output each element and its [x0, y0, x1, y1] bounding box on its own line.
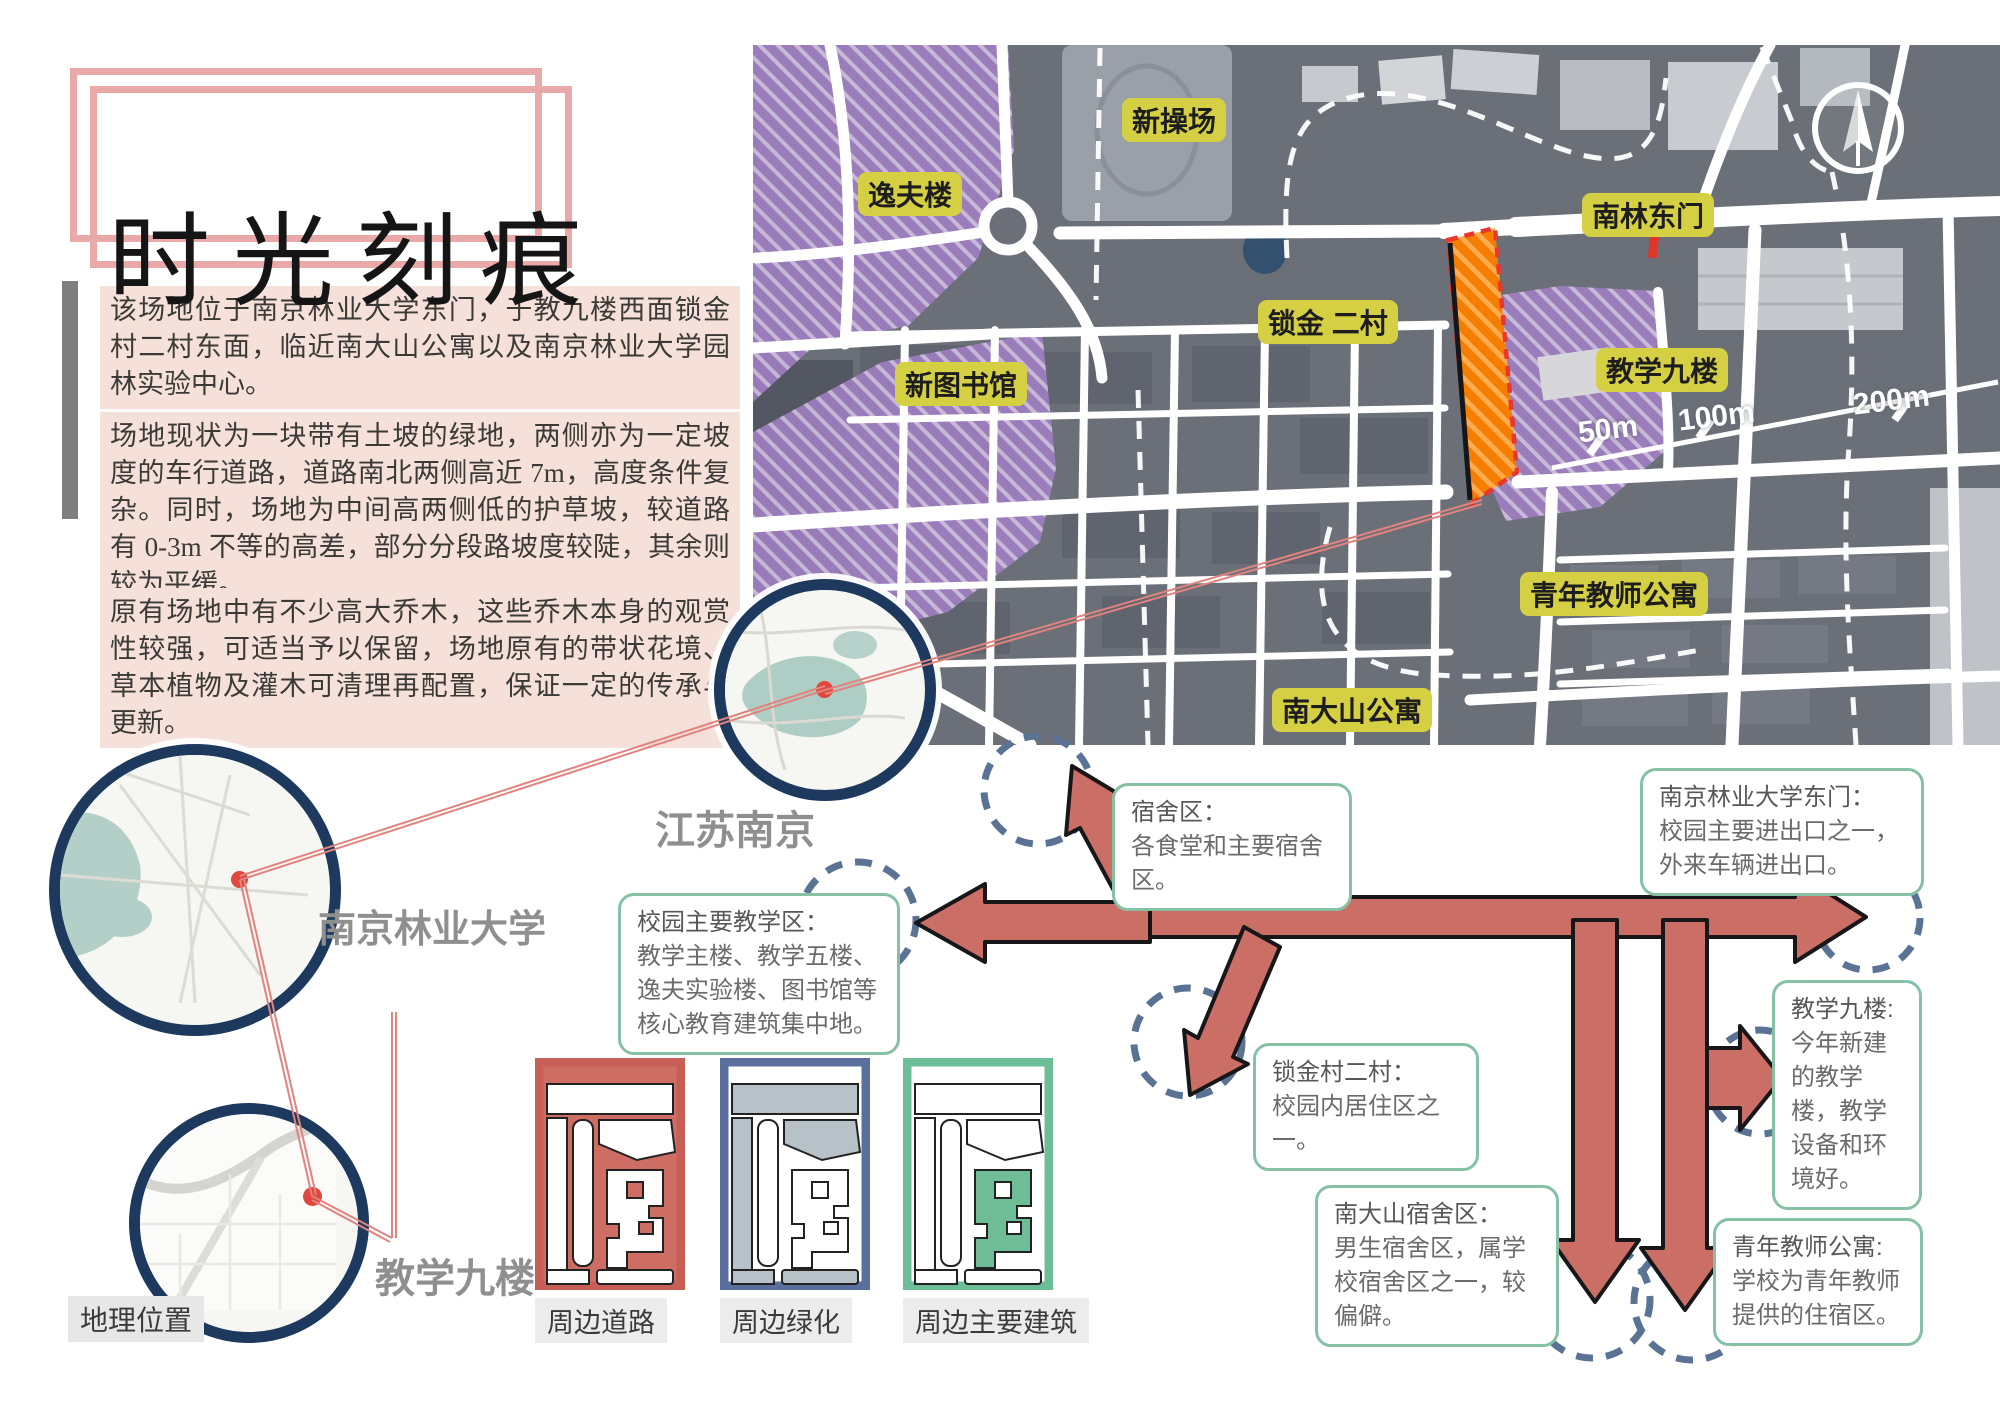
analysis-overlay	[0, 0, 2000, 1414]
callout-suojin: 锁金村二村： 校园内居住区之一。	[1253, 1043, 1479, 1171]
callout-teaching-area-title: 校园主要教学区：	[637, 906, 881, 940]
presentation-board: { "board": { "title": "时光刻痕" }, "intro":…	[0, 0, 2000, 1414]
callout-dorm-body: 各食堂和主要宿舍区。	[1131, 833, 1323, 894]
callout-teacher-apt-body: 学校为青年教师提供的住宿区。	[1732, 1268, 1900, 1329]
callout-teaching9-body: 今年新建的教学楼，教学设备和环境好。	[1791, 1030, 1887, 1193]
callout-teacher-apt-title: 青年教师公寓:	[1732, 1231, 1904, 1265]
callout-teaching9: 教学九楼: 今年新建的教学楼，教学设备和环境好。	[1772, 980, 1922, 1210]
callout-suojin-body: 校园内居住区之一。	[1272, 1093, 1440, 1154]
callout-east-gate: 南京林业大学东门： 校园主要进出口之一，外来车辆进出口。	[1640, 768, 1924, 896]
callout-teaching9-title: 教学九楼:	[1791, 993, 1903, 1027]
callout-dorm: 宿舍区： 各食堂和主要宿舍区。	[1112, 783, 1352, 911]
callout-east-gate-title: 南京林业大学东门：	[1659, 781, 1905, 815]
callout-nandashan-title: 南大山宿舍区：	[1334, 1198, 1540, 1232]
callout-nandashan-body: 男生宿舍区，属学校宿舍区之一，较偏僻。	[1334, 1235, 1526, 1330]
callout-teacher-apt: 青年教师公寓: 学校为青年教师提供的住宿区。	[1713, 1218, 1923, 1346]
callout-dorm-title: 宿舍区：	[1131, 796, 1333, 830]
callout-teaching-area: 校园主要教学区： 教学主楼、教学五楼、逸夫实验楼、图书馆等核心教育建筑集中地。	[618, 893, 900, 1055]
callout-east-gate-body: 校园主要进出口之一，外来车辆进出口。	[1659, 818, 1899, 879]
arrow-down-nandashan	[1551, 920, 1639, 1302]
callout-teaching-area-body: 教学主楼、教学五楼、逸夫实验楼、图书馆等核心教育建筑集中地。	[637, 943, 877, 1038]
callout-suojin-title: 锁金村二村：	[1272, 1056, 1460, 1090]
callout-nandashan: 南大山宿舍区： 男生宿舍区，属学校宿舍区之一，较偏僻。	[1315, 1185, 1559, 1347]
